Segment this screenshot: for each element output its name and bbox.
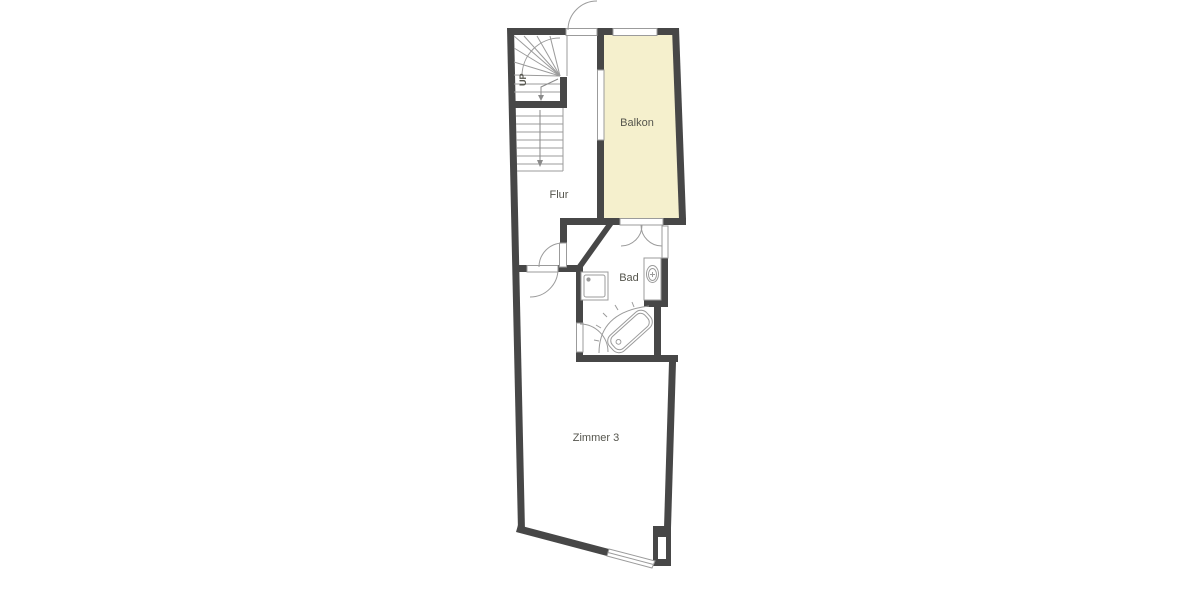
balcony-top-wall-left (597, 28, 613, 35)
hallway-label: Flur (550, 189, 569, 201)
stair-arrowhead-upper (538, 95, 544, 101)
shower-drain (587, 278, 590, 281)
bath-right-wall-lower (654, 307, 661, 362)
hall-bottom-wall-left (513, 265, 527, 272)
stair-arrow-upper-line (541, 79, 558, 96)
hall-room-door-swing (530, 269, 558, 297)
stairs-up-label: UP (518, 73, 528, 86)
room-right-wall (664, 362, 676, 528)
top-wall (507, 28, 566, 35)
screen-tick (615, 305, 618, 310)
hall-room-door-opening (527, 266, 558, 273)
balcony-left-wall-lower (597, 140, 604, 219)
balcony-left-wall-upper (597, 35, 604, 70)
stair-newel-wall (560, 77, 567, 108)
screen-tick (596, 325, 601, 328)
balcony-door-swing-right (641, 225, 662, 246)
bath-bottom-wall (576, 355, 678, 362)
bath-diagonal-wall (576, 225, 613, 267)
room-bottom-wall (516, 525, 609, 556)
corner-pillar-slot (658, 537, 666, 559)
bathtub (604, 307, 655, 356)
screen-tick (632, 302, 634, 307)
winder-tread (514, 48, 560, 76)
hall-bath-door-opening (560, 243, 567, 267)
balcony-bottom-wall-right (663, 218, 686, 225)
stair-mid-wall (509, 101, 567, 108)
entrance-door-opening (566, 29, 597, 36)
bath-right-wall-upper (661, 258, 668, 302)
balcony-bottom-wall-left (560, 218, 620, 225)
winder-tread (514, 36, 560, 76)
bathroom-label: Bad (619, 272, 639, 284)
room-bath-door-swing (580, 324, 608, 352)
bathtub-outline (604, 307, 655, 356)
hall-right-wall (560, 218, 567, 243)
floor-plan: Balkon Flur Bad Zimmer 3 UP (0, 0, 1200, 600)
balcony-label: Balkon (620, 117, 654, 129)
balcony-top-window (613, 29, 657, 36)
room3-label: Zimmer 3 (573, 432, 619, 444)
room-bath-door-opening (577, 323, 584, 352)
entrance-door-swing (568, 1, 597, 30)
screen-tick (603, 313, 607, 317)
shower-tray (581, 272, 608, 300)
balcony-left-window (598, 70, 605, 140)
balcony-door-opening (620, 219, 663, 226)
screen-tick (594, 340, 599, 341)
bath-right-window (662, 226, 668, 258)
balcony-door-swing-left (621, 225, 642, 246)
